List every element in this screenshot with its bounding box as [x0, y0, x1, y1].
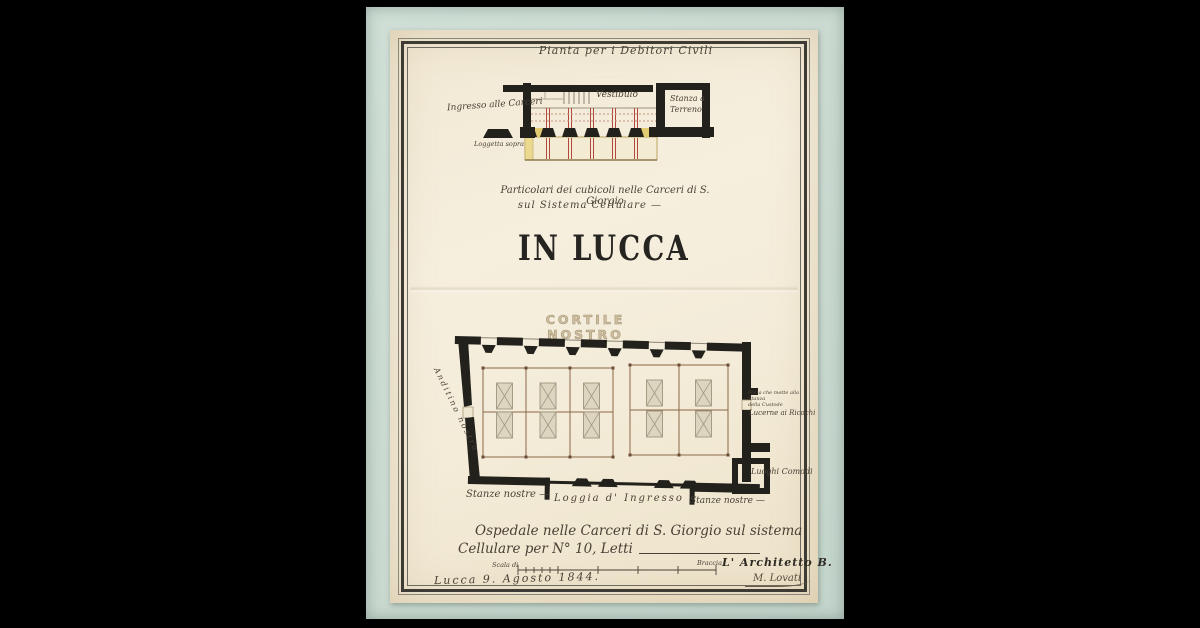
footer-caption-line2: Cellulare per N° 10, Letti: [458, 541, 760, 557]
scale-label: Scala di: [492, 561, 518, 569]
section-title: Pianta per i Debitori Civili: [526, 44, 726, 57]
rooms-right-label: Stanze nostre —: [690, 496, 765, 506]
floor-plan-svg: [420, 330, 800, 505]
footer-caption-line1: Ospedale nelle Carceri di S. Giorgio sul…: [475, 523, 765, 539]
document-mount: Pianta per i Debitori Civili: [366, 7, 844, 619]
rooms-left-label: Stanze nostre —: [466, 489, 549, 500]
main-title: IN LUCCA: [487, 228, 721, 269]
door-note: Porta che mette alla Stanza della Custod…: [748, 390, 808, 408]
lucerne-label: Lucerne ai Ricochi: [749, 409, 815, 417]
red-cell-partitions: [547, 108, 638, 128]
vestibule-label: Vestibulo: [596, 90, 638, 100]
caption-rule: [639, 552, 760, 554]
caption-line2: sul Sistema Cellulare —: [480, 200, 700, 211]
loggia-note: Loggetta sopra: [474, 140, 524, 148]
cell-block-right: [630, 365, 728, 455]
paper-sheet: Pianta per i Debitori Civili: [390, 30, 818, 603]
ground-room-label: Stanza a Terreno: [670, 93, 705, 115]
scanned-document-page: C/ N° 21 Pianta per i Debitori Civili: [0, 0, 1200, 628]
toilets-label: Luoghi Comodi: [751, 467, 813, 476]
signature: M. Lovati: [745, 573, 809, 587]
scale-unit-label: Braccia: [697, 559, 722, 567]
fold-crease: [410, 286, 798, 293]
architect-label: L' Architetto B.: [722, 556, 833, 569]
loggia-label: Loggia d' Ingresso: [554, 493, 684, 504]
date-line: Lucca 9. Agosto 1844.: [434, 570, 600, 587]
north-wall: [455, 336, 749, 360]
